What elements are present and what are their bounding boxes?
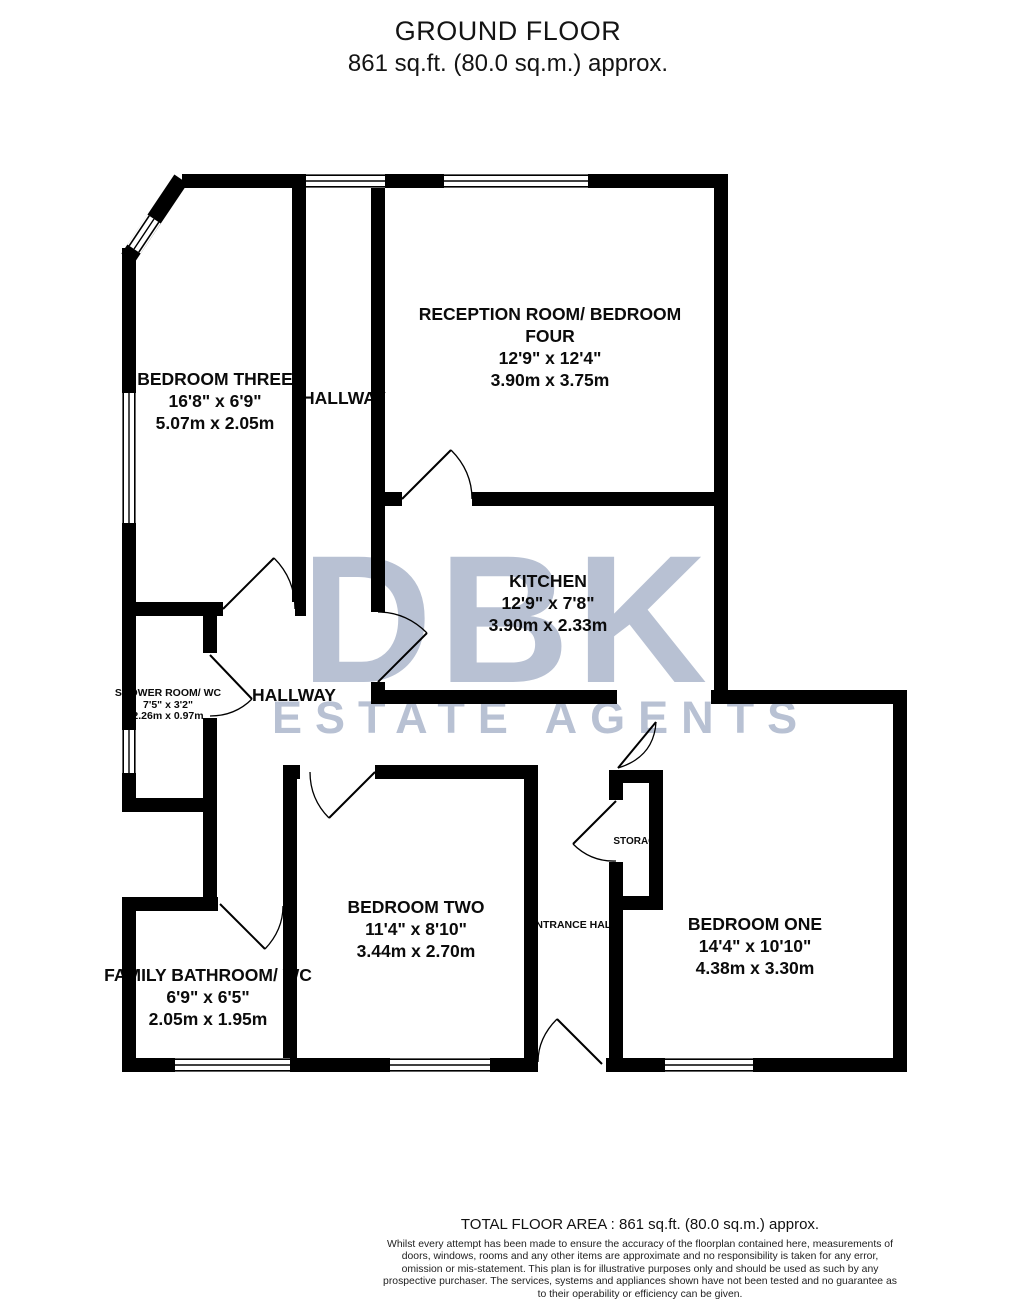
area-label-storage: STORAGE	[578, 836, 698, 848]
area-label-hallway-lower: HALLWAY	[214, 684, 374, 706]
room-dims-metric: 3.44m x 2.70m	[296, 940, 536, 962]
room-label-bedroom-one: BEDROOM ONE 14'4" x 10'10" 4.38m x 3.30m	[635, 913, 875, 979]
room-label-reception-room-bedroom-four: RECEPTION ROOM/ BEDROOM FOUR 12'9" x 12'…	[400, 303, 700, 391]
room-name: FAMILY BATHROOM/ WC	[88, 964, 328, 986]
page-subtitle: 861 sq.ft. (80.0 sq.m.) approx.	[0, 50, 1016, 78]
room-dims-metric: 3.90m x 2.33m	[428, 614, 668, 636]
area-label-entrance-hall: ENTRANCE HALL	[493, 920, 653, 932]
footer-total-area: TOTAL FLOOR AREA : 861 sq.ft. (80.0 sq.m…	[380, 1216, 900, 1233]
room-name: BEDROOM TWO	[296, 896, 536, 918]
room-name: BEDROOM ONE	[635, 913, 875, 935]
room-dims-metric: 3.90m x 3.75m	[400, 369, 700, 391]
plan-header: GROUND FLOOR 861 sq.ft. (80.0 sq.m.) app…	[0, 16, 1016, 78]
plan-footer: TOTAL FLOOR AREA : 861 sq.ft. (80.0 sq.m…	[380, 1216, 900, 1299]
area-label-hallway-upper: HALLWAY	[264, 387, 424, 409]
room-dims-imperial: 14'4" x 10'10"	[635, 935, 875, 957]
room-dims-imperial: 12'9" x 12'4"	[400, 347, 700, 369]
room-dims-imperial: 12'9" x 7'8"	[428, 592, 668, 614]
room-dims-metric: 2.26m x 0.97m	[68, 711, 268, 723]
room-dims-metric: 2.05m x 1.95m	[88, 1008, 328, 1030]
room-dims-imperial: 6'9" x 6'5"	[88, 986, 328, 1008]
floorplan-page: GROUND FLOOR 861 sq.ft. (80.0 sq.m.) app…	[0, 0, 1024, 1299]
room-name: KITCHEN	[428, 570, 668, 592]
room-dims-metric: 4.38m x 3.30m	[635, 957, 875, 979]
room-name: RECEPTION ROOM/ BEDROOM FOUR	[400, 303, 700, 347]
room-label-family-bathroom-wc: FAMILY BATHROOM/ WC 6'9" x 6'5" 2.05m x …	[88, 964, 328, 1030]
footer-disclaimer: Whilst every attempt has been made to en…	[380, 1239, 900, 1299]
room-dims-metric: 5.07m x 2.05m	[95, 412, 335, 434]
page-title: GROUND FLOOR	[0, 16, 1016, 47]
room-label-kitchen: KITCHEN 12'9" x 7'8" 3.90m x 2.33m	[428, 570, 668, 636]
